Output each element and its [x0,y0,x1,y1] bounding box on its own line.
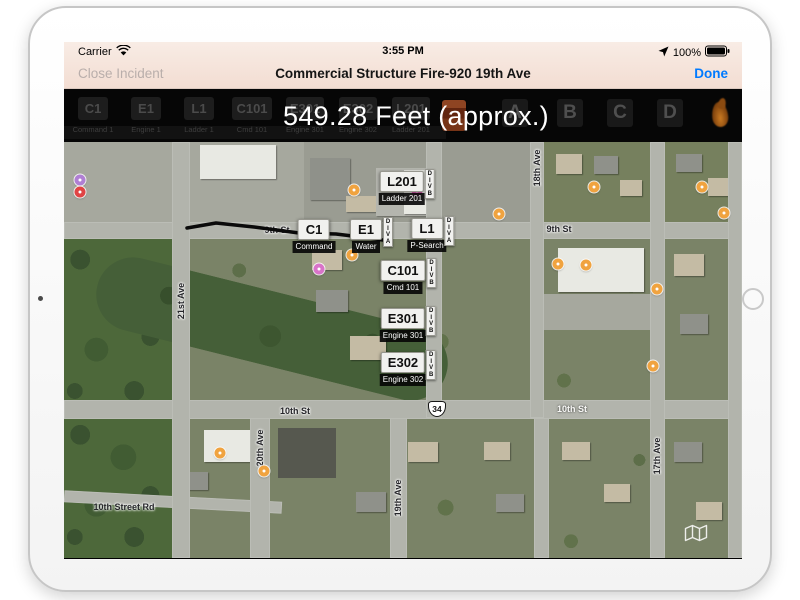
map-terrain [316,290,348,312]
poi-dot [700,185,704,189]
marker-unit-id: E302 [381,352,425,373]
unit-id-label: E1 [131,97,161,120]
division-letter: B [429,372,433,379]
unit-button-l1[interactable]: L1Ladder 1 [178,97,220,134]
marker-division-strip: DIVA [444,216,454,246]
status-bar: Carrier 3:55 PM 100% [64,42,742,62]
division-letter: B [429,328,433,335]
map-terrain [696,502,722,520]
map-terrain [674,254,704,276]
marker-division-strip: DIVA [383,217,393,247]
unit-name-label: Ladder 1 [184,125,214,134]
map-terrain [496,494,524,512]
map-poi [648,361,659,372]
unit-name-label: Engine 1 [131,125,161,134]
street-label: 20th Ave [255,430,265,467]
map-poi [75,187,86,198]
unit-button-e1[interactable]: E1Engine 1 [125,97,167,134]
map-terrain [556,154,582,174]
poi-dot [317,267,321,271]
marker-unit-id: L201 [380,171,424,192]
map-marker-e301[interactable]: E301DIVBEngine 301 [380,308,426,342]
map-terrain [536,294,652,330]
map-marker-l201[interactable]: L201DIVBLadder 201 [379,171,425,205]
flame-icon[interactable] [709,98,731,130]
map-terrain [680,314,708,334]
map-poi [553,259,564,270]
map-terrain [676,154,702,172]
map-terrain [620,180,642,196]
map-terrain [64,418,172,558]
nav-bar: Close Incident Commercial Structure Fire… [64,60,742,89]
marker-assignment-label: Ladder 201 [379,193,425,205]
poi-dot [78,178,82,182]
marker-box-wrap: E302DIVB [381,352,425,373]
marker-division-strip: DIVB [426,350,436,380]
poi-dot [584,263,588,267]
poi-dot [556,262,560,266]
poi-dot [262,469,266,473]
map-marker-c101[interactable]: C101DIVBCmd 101 [380,260,425,294]
poi-dot [78,190,82,194]
map-terrain [594,156,618,174]
marker-box-wrap: L1DIVA [411,218,443,239]
unit-name-label: Cmd 101 [237,125,267,134]
street-label: 17th Ave [652,438,662,475]
map-poi [494,209,505,220]
map-poi [349,185,360,196]
marker-box-wrap: E1DIVA [350,219,382,240]
front-camera [38,296,43,301]
map-terrain [356,492,386,512]
marker-division-strip: DIVB [426,306,436,336]
unit-button-c101[interactable]: C101Cmd 101 [231,97,273,134]
division-letter: B [428,191,432,198]
division-letter: A [386,239,390,246]
map-terrain [674,442,702,462]
map-terrain [172,142,190,558]
map-terrain [64,400,742,419]
poi-dot [722,211,726,215]
page: Carrier 3:55 PM 100% Close Incident Comm… [0,0,800,600]
map-terrain [484,442,510,460]
map-terrain [204,430,252,462]
battery-icon [705,45,730,60]
street-label: 9th St [264,225,289,235]
map-marker-c1[interactable]: C1Command [293,219,336,253]
street-label: 10th Street Rd [93,502,154,512]
incident-title: Commercial Structure Fire-920 19th Ave [64,66,742,81]
poi-dot [218,451,222,455]
map-poi [719,208,730,219]
marker-assignment-label: Engine 302 [380,374,426,386]
top-bars: Carrier 3:55 PM 100% Close Incident Comm… [64,42,742,89]
map-terrain [558,248,644,292]
unit-id-label: C1 [78,97,108,120]
marker-unit-id: L1 [411,218,443,239]
clock: 3:55 PM [64,45,742,57]
location-arrow-icon [658,46,669,60]
unit-toolbar: C1Command 1E1Engine 1L1Ladder 1C101Cmd 1… [64,89,742,142]
unit-name-label: Command 1 [73,125,114,134]
map-terrain [562,442,590,460]
map-view[interactable]: 9th St9th St10th St10th St10th Street Rd… [64,142,742,558]
poi-dot [352,188,356,192]
map-poi [581,260,592,271]
division-letter: A [447,238,451,245]
map-terrain [310,158,350,200]
battery-percent: 100% [673,47,701,59]
marker-unit-id: E301 [381,308,425,329]
map-poi [589,182,600,193]
map-terrain [200,145,276,179]
side-button-b[interactable]: B [557,99,583,127]
marker-unit-id: E1 [350,219,382,240]
marker-division-strip: DIVB [427,258,437,288]
marker-assignment-label: Cmd 101 [384,282,422,294]
street-label: 10th St [557,404,587,414]
map-poi [75,175,86,186]
map-poi [259,466,270,477]
map-poi [314,264,325,275]
street-label: 9th St [546,224,571,234]
map-terrain [728,142,742,558]
map-marker-e302[interactable]: E302DIVBEngine 302 [380,352,426,386]
poi-dot [592,185,596,189]
ipad-device-frame: Carrier 3:55 PM 100% Close Incident Comm… [28,6,772,592]
map-terrain [650,142,665,558]
side-button-d[interactable]: D [657,99,683,127]
street-label: 21st Ave [176,283,186,319]
street-label: 18th Ave [532,150,542,187]
marker-box-wrap: E301DIVB [381,308,425,329]
marker-box-wrap: C101DIVB [380,260,425,281]
measurement-readout: 549.28 Feet (approx.) [283,101,549,132]
map-terrain [278,428,336,478]
map-terrain [346,196,376,212]
screen: Carrier 3:55 PM 100% Close Incident Comm… [64,42,742,559]
map-poi [697,182,708,193]
marker-assignment-label: Engine 301 [380,330,426,342]
poi-dot [651,364,655,368]
marker-box-wrap: L201DIVB [380,171,424,192]
marker-assignment-label: Command [293,241,336,253]
poi-dot [497,212,501,216]
map-terrain [408,442,438,462]
marker-assignment-label: Water [352,241,379,253]
marker-box-wrap: C1 [298,219,330,240]
map-marker-l1[interactable]: L1DIVAP-Search [407,218,446,252]
map-poi [652,284,663,295]
marker-division-strip: DIVB [425,169,435,199]
map-terrain [64,222,742,239]
side-button-c[interactable]: C [607,99,633,127]
unit-button-c1[interactable]: C1Command 1 [72,97,114,134]
poi-dot [655,287,659,291]
marker-unit-id: C101 [380,260,425,281]
poi-dot [350,253,354,257]
map-terrain [534,418,549,558]
home-button[interactable] [742,288,764,310]
street-label: 10th St [280,406,310,416]
folded-map-icon [684,524,708,542]
map-marker-e1[interactable]: E1DIVAWater [350,219,382,253]
unit-id-label: L1 [184,97,214,120]
map-poi [215,448,226,459]
division-letter: B [429,280,433,287]
street-label: 19th Ave [393,480,403,517]
done-button[interactable]: Done [694,66,728,81]
unit-id-label: C101 [232,97,271,120]
map-terrain [604,484,630,502]
marker-unit-id: C1 [298,219,330,240]
marker-assignment-label: P-Search [407,240,446,252]
